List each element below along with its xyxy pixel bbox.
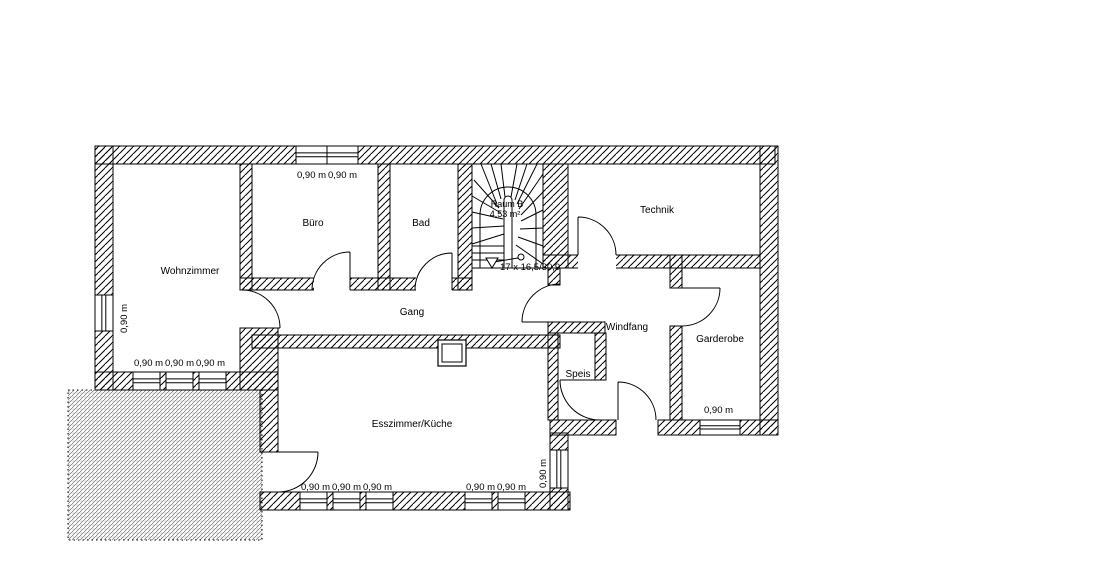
window	[133, 372, 160, 390]
room-label-speis: Speis	[565, 369, 590, 380]
room-label-windfang: Windfang	[606, 322, 648, 333]
stair-steps-annotation: 17 x 16,5/30,9	[500, 262, 560, 273]
window	[498, 492, 525, 510]
stair-room-name: Raum B	[491, 199, 524, 209]
window	[296, 146, 327, 164]
window	[327, 146, 358, 164]
dim-esszimmer-window-1: 0,90 m	[301, 482, 330, 493]
room-label-bad: Bad	[412, 218, 430, 229]
dim-garderobe-window: 0,90 m	[704, 405, 733, 416]
drawing-area: Wohnzimmer Büro Bad Technik Gang Windfan…	[0, 0, 1113, 581]
window	[300, 492, 327, 510]
room-label-garderobe: Garderobe	[696, 334, 744, 345]
dim-left-window: 0,90 m	[119, 304, 130, 333]
dim-esszimmer-window-4: 0,90 m	[466, 482, 495, 493]
dim-esszimmer-window-5: 0,90 m	[497, 482, 526, 493]
window	[366, 492, 393, 510]
dim-esszimmer-window-2: 0,90 m	[332, 482, 361, 493]
window	[700, 420, 740, 435]
chimney	[438, 340, 466, 366]
window	[166, 372, 193, 390]
dim-wohnzimmer-window-3: 0,90 m	[196, 358, 225, 369]
window	[199, 372, 226, 390]
room-label-gang: Gang	[400, 307, 424, 318]
dim-wohnzimmer-window-2: 0,90 m	[165, 358, 194, 369]
stair-room-area: 4,53 m²	[490, 209, 521, 219]
dim-wohnzimmer-window-1: 0,90 m	[134, 358, 163, 369]
window	[95, 295, 113, 331]
room-label-wohnzimmer: Wohnzimmer	[161, 266, 220, 277]
room-label-technik: Technik	[640, 205, 675, 216]
window	[550, 450, 568, 488]
dim-top-window-2: 0,90 m	[328, 170, 357, 181]
floor-plan-canvas[interactable]: Wohnzimmer Büro Bad Technik Gang Windfan…	[0, 0, 1113, 581]
dim-top-window-1: 0,90 m	[297, 170, 326, 181]
room-label-buero: Büro	[302, 218, 324, 229]
dim-esszimmer-right-window: 0,90 m	[538, 459, 549, 488]
dim-esszimmer-window-3: 0,90 m	[363, 482, 392, 493]
terrace-area	[68, 390, 262, 540]
room-label-esszimmer: Esszimmer/Küche	[372, 419, 453, 430]
window	[333, 492, 360, 510]
window	[465, 492, 492, 510]
